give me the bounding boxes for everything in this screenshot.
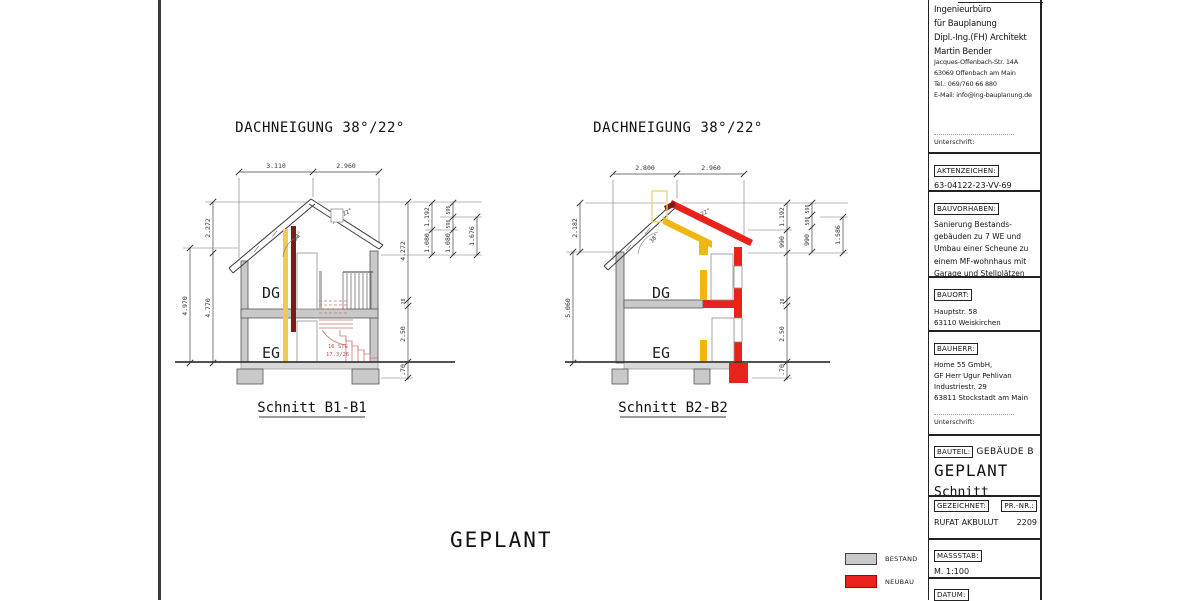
angle-label: 22° (700, 208, 712, 218)
dim-label: 4.272 (399, 241, 407, 261)
drawing2-left-dims: 5.060 2.182 (564, 200, 666, 366)
bauherr-line: Industriestr. 29 (934, 382, 1037, 393)
divider (929, 495, 1040, 497)
stair-note-line1: 16 STG (328, 344, 348, 350)
datum-label: DATUM: (934, 589, 969, 601)
drawing2-caption: Schnitt B2-B2 (618, 400, 728, 416)
bauvorhaben-line: gebäuden zu 7 WE und (934, 231, 1037, 243)
divider (929, 538, 1040, 540)
divider (929, 152, 1040, 154)
divider (929, 577, 1040, 579)
roof-dormer-box (331, 209, 343, 222)
firm-line: Ingenieurbüro (934, 3, 1037, 17)
dim-label: 1.586 (834, 225, 842, 245)
dim-label: 990 (803, 234, 811, 246)
firm-info: Ingenieurbüro für Bauplanung Dipl.-Ing.(… (934, 3, 1037, 59)
section-drawing-b1: DACHNEIGUNG 38°/22° 3.110 2.960 4.970 4.… (170, 110, 505, 430)
bauteil-label: BAUTEIL: (934, 446, 973, 458)
prnr-value: 2209 (1017, 518, 1037, 527)
drawing1-caption: Schnitt B1-B1 (257, 400, 367, 416)
wall-right-new (734, 247, 742, 363)
address-line: E-Mail: info@ing-bauplanung.de (934, 90, 1037, 101)
bauvorhaben-line: Umbau einer Scheune zu (934, 243, 1037, 255)
roof-ridge-dark-red (664, 201, 676, 211)
bauherr-section: BAUHERR: Home 55 GmbH, GF Herr Ugur Pehl… (934, 336, 1037, 404)
divider (929, 190, 1040, 192)
bauteil-geplant: GEPLANT (934, 461, 1037, 480)
divider (929, 276, 1040, 278)
legend-label-neubau: NEUBAU (885, 578, 914, 586)
massstab-section: MASSSTAB: M. 1:100 (934, 543, 1037, 576)
firm-line: für Bauplanung (934, 17, 1037, 31)
architectural-plan-sheet: { "colors": { "bestand": "#c9c9c9", "neu… (0, 0, 1200, 600)
gezeichnet-label: GEZEICHNET: (934, 500, 989, 512)
drawing1-house (175, 199, 455, 384)
bauvorhaben-line: Garage und Stellplätzen (934, 268, 1037, 280)
dim-label: 5.060 (564, 298, 572, 318)
unterschrift-label: Unterschrift: (934, 138, 1037, 146)
divider (929, 434, 1040, 436)
dim-label: 1.192 (778, 207, 786, 227)
interior-wall-eg (297, 321, 317, 362)
bauort-line: 63110 Weiskirchen (934, 318, 1037, 329)
firm-line: Dipl.-Ing.(FH) Architekt (934, 31, 1037, 45)
post-yellow-dg (700, 270, 707, 300)
interior-wall-eg (712, 318, 734, 362)
roof-new-red (669, 200, 753, 246)
dim-label: 596 (805, 204, 811, 213)
beam-hanger-yellow (699, 242, 708, 255)
dim-label: 2.800 (635, 164, 655, 172)
dim-label: 3.110 (266, 162, 286, 170)
stair-note-line2: 17.3/26 (326, 352, 349, 358)
bauvorhaben-label: BAUVORHABEN: (934, 203, 999, 215)
floor-label-dg: DG (652, 284, 670, 302)
signature-line (934, 134, 1014, 135)
massstab-value: M. 1:100 (934, 567, 1037, 576)
dim-label: 2.960 (701, 164, 721, 172)
aktenzeichen-section: AKTENZEICHEN: 63-04122-23-VV-69 (934, 158, 1037, 190)
dim-label: 1.080 (444, 233, 452, 253)
dim-label: 2.50 (778, 326, 786, 342)
bauteil-value: GEBÄUDE B (976, 447, 1034, 457)
unterschrift-label: Unterschrift: (934, 418, 1037, 426)
address-line: Tel.: 069/760 66 880 (934, 79, 1037, 90)
bauvorhaben-line: einem MF-wohnhaus mit (934, 256, 1037, 268)
chimney-dark-red-strip (291, 226, 296, 332)
foundation-right (352, 369, 379, 384)
dim-label: 4.770 (204, 298, 212, 318)
dim-label: 1.080 (423, 233, 431, 253)
foundation-right-new (729, 363, 748, 383)
bauherr-line: Home 55 GmbH, (934, 360, 1037, 371)
signature-line (934, 414, 1014, 415)
floor-label-dg: DG (262, 284, 280, 302)
section-drawing-b2: DACHNEIGUNG 38°/22° 2.800 2.960 5.060 2.… (555, 110, 855, 430)
wall-left (616, 252, 624, 363)
floor-slab-eg (624, 362, 730, 369)
bauort-label: BAUORT: (934, 289, 972, 301)
address-line: 63069 Offenbach am Main (934, 68, 1037, 79)
dim-label: 596 (446, 219, 452, 228)
drawing2-house (565, 191, 830, 384)
foundation-left (612, 369, 628, 384)
prnr-label: PR.-NR.: (1001, 500, 1037, 512)
gezeichnet-value: RUFAT AKBULUT (934, 518, 998, 527)
bauherr-label: BAUHERR: (934, 343, 978, 355)
floor-slab-eg (241, 362, 378, 369)
interior-post (319, 271, 322, 309)
interior-wall-dg (711, 254, 733, 300)
chimney-yellow-strip (283, 229, 288, 362)
massstab-label: MASSSTAB: (934, 550, 982, 562)
dim-label: 2.50 (399, 326, 407, 342)
bauort-section: BAUORT: Hauptstr. 58 63110 Weiskirchen (934, 282, 1037, 329)
datum-section: DATUM: (934, 582, 1037, 601)
floor-label-eg: EG (262, 344, 280, 362)
aktenzeichen-label: AKTENZEICHEN: (934, 165, 999, 177)
aktenzeichen-value: 63-04122-23-VV-69 (934, 181, 1037, 190)
dim-label: 990 (778, 236, 786, 248)
legend-swatch-neubau (845, 575, 878, 589)
dim-label: 596 (446, 205, 452, 214)
sheet-left-border (158, 0, 161, 600)
sheet-caption: GEPLANT (450, 528, 553, 552)
bauvorhaben-line: Sanierung Bestands- (934, 219, 1037, 231)
dim-label: 2.960 (336, 162, 356, 170)
dim-label: .28 (401, 298, 407, 307)
bauherr-line: 63811 Stockstadt am Main (934, 393, 1037, 404)
dim-label: .70 (399, 364, 407, 376)
legend-swatch-bestand (845, 553, 878, 566)
stair-railing (343, 272, 373, 309)
legend-label-bestand: BESTAND (885, 555, 918, 563)
bauort-line: Hauptstr. 58 (934, 307, 1037, 318)
dim-label: 4.970 (181, 296, 189, 316)
window-dg (734, 266, 742, 288)
bauvorhaben-section: BAUVORHABEN: Sanierung Bestands- gebäude… (934, 196, 1037, 280)
post-yellow-eg (700, 340, 707, 362)
bauteil-schnitt: Schnitt (934, 485, 1037, 500)
dim-label: 2.182 (571, 218, 579, 238)
dim-label: .28 (780, 298, 786, 307)
address-line: Jacques-Offenbach-Str. 14A (934, 57, 1037, 68)
foundation-left (237, 369, 263, 384)
drawing1-title: DACHNEIGUNG 38°/22° (235, 120, 405, 136)
drawing2-title: DACHNEIGUNG 38°/22° (593, 120, 763, 136)
window-eg (734, 318, 742, 342)
firm-address: Jacques-Offenbach-Str. 14A 63069 Offenba… (934, 57, 1037, 101)
dim-label: 596 (805, 216, 811, 225)
divider (929, 330, 1040, 332)
gezeichnet-section: GEZEICHNET: PR.-NR.: RUFAT AKBULUT 2209 (934, 500, 1037, 527)
angle-label: 22° (342, 208, 354, 218)
interior-wall-dg (297, 253, 317, 309)
dim-label: 2.272 (204, 218, 212, 238)
dim-label: .70 (778, 364, 786, 376)
floor-label-eg: EG (652, 344, 670, 362)
foundation-center (694, 369, 710, 384)
title-block: Ingenieurbüro für Bauplanung Dipl.-Ing.(… (928, 0, 1042, 600)
bauteil-section: BAUTEIL:GEBÄUDE B GEPLANT Schnitt (934, 439, 1037, 500)
dim-label: 1.192 (423, 207, 431, 227)
dim-label: 1.676 (468, 226, 476, 246)
bauherr-line: GF Herr Ugur Pehlivan (934, 371, 1037, 382)
floor-slab-dg (241, 309, 378, 318)
